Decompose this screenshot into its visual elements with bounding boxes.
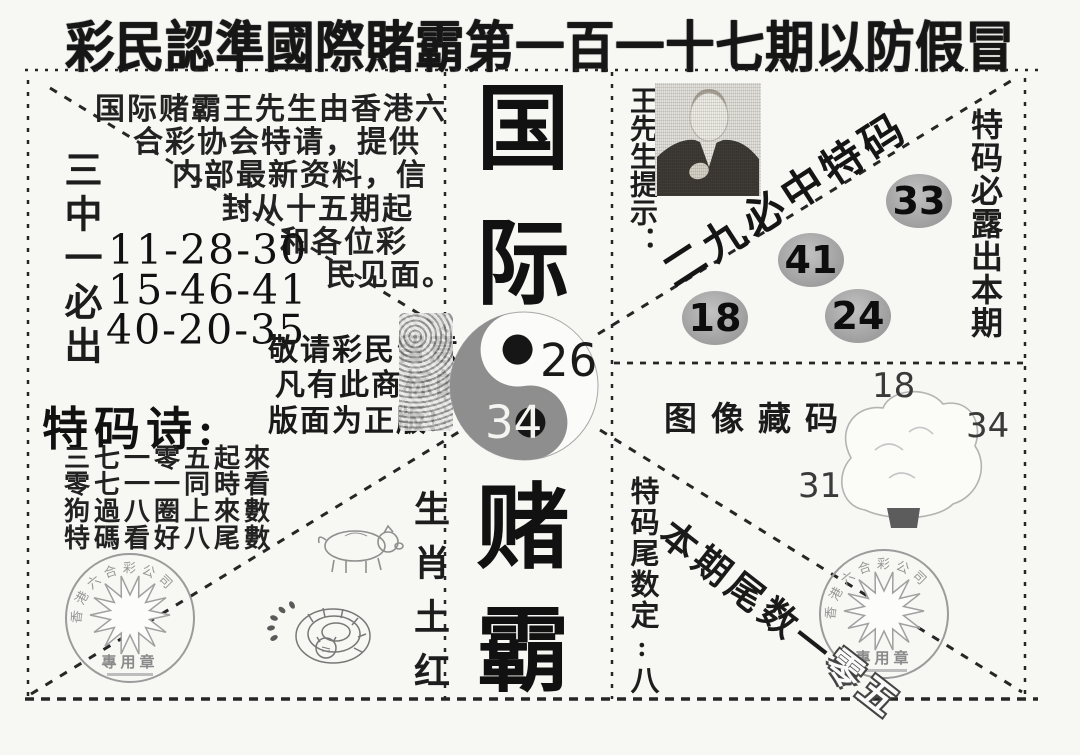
number-ball: 41 (778, 233, 844, 287)
number-ball: 18 (682, 291, 748, 345)
tiger-icon (258, 596, 382, 674)
tree-number-left: 31 (798, 466, 841, 506)
portrait-photo (655, 83, 761, 196)
title-char: 国 (464, 84, 582, 177)
tail-hint-label: 特码尾数定:八 (621, 476, 663, 696)
number-ball: 24 (825, 289, 891, 343)
zodiac-label: 生肖土红 (403, 490, 455, 706)
right-column-label: 特码必露出本期 (962, 108, 1008, 339)
image-code-label: 图像藏码 (664, 392, 852, 440)
seal-left: 香港六合彩公司 專用章 (55, 543, 205, 693)
title-char: 霸 (464, 606, 582, 699)
paw-prints-icon (267, 600, 297, 642)
title-char: 赌 (464, 483, 582, 576)
pig-icon (300, 520, 410, 578)
yinyang-bottom-number: 34 (485, 396, 542, 449)
seal-label: 專用章 (101, 653, 158, 671)
tree-trunk (887, 508, 920, 528)
tree-number-right: 34 (966, 406, 1009, 446)
tree-number-top: 18 (872, 366, 915, 406)
starburst-icon (844, 572, 924, 650)
pick-three-label: 三中一必出 (52, 150, 107, 370)
starburst-icon (90, 576, 170, 654)
number-ball: 33 (886, 174, 952, 228)
intro-line: 民见面。 (326, 250, 454, 294)
yinyang-top-number: 26 (540, 334, 597, 387)
title-char: 际 (464, 219, 582, 312)
lottery-flyer: 彩民認準國際賭霸第一百一十七期以防假冒 国际赌霸王先生由香港六 合彩协会特请，提… (0, 0, 1080, 755)
trademark-stamp (399, 313, 453, 431)
seal-fine-print (107, 673, 153, 676)
